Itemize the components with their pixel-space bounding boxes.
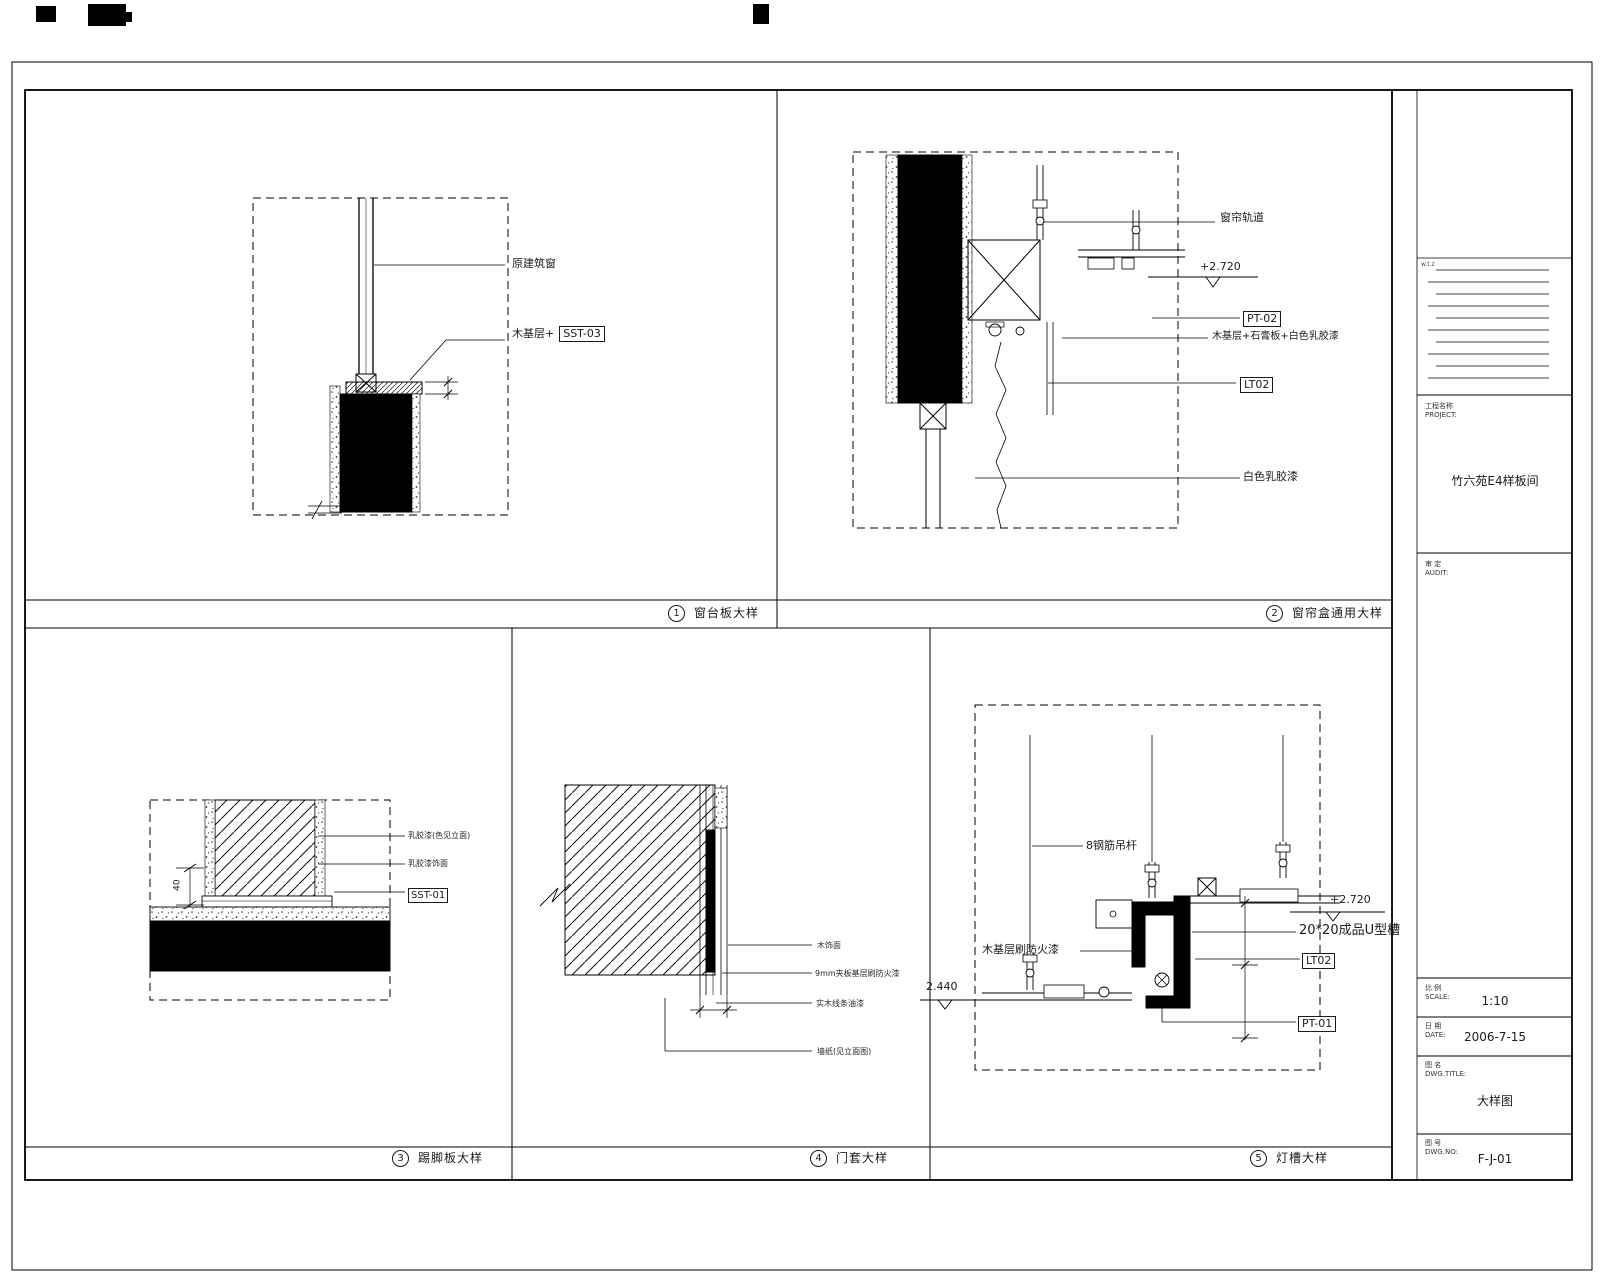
p5-title: 5 灯槽大样	[1250, 1150, 1328, 1167]
titleblock-note: w.t.z	[1421, 262, 1435, 269]
p3-title: 3 踢脚板大样	[392, 1150, 483, 1167]
p3-code-sst01: SST-01	[408, 884, 448, 903]
registration-marks	[36, 4, 769, 26]
p5-title-text: 灯槽大样	[1276, 1152, 1328, 1166]
titleblock-no-value: F-J-01	[1440, 1152, 1550, 1166]
panel3-linework	[150, 800, 405, 1000]
titleblock-project-label: 工程名称 PROJECT:	[1425, 402, 1457, 420]
p1-code-sst03: SST-03	[559, 326, 605, 342]
p4-title-text: 门套大样	[836, 1152, 888, 1166]
p1-title-text: 窗台板大样	[694, 607, 759, 621]
scale-label-cn: 比 例	[1425, 984, 1450, 993]
p3-title-text: 踢脚板大样	[418, 1152, 483, 1166]
panel1-linework	[253, 198, 508, 519]
p2-label-curtain-track: 窗帘轨道	[1220, 212, 1264, 225]
p4-label-wallpaper: 墙纸(见立面图)	[817, 1047, 871, 1056]
p5-elevation-low: 2.440	[926, 981, 958, 994]
titleblock-scale-value: 1:10	[1440, 994, 1550, 1008]
p2-code-pt02: PT-02	[1243, 308, 1281, 327]
p5-code-pt01-box: PT-01	[1298, 1016, 1336, 1032]
p2-title-text: 窗帘盒通用大样	[1292, 607, 1383, 621]
p3-label-wall-finish: 乳胶漆(色见立面)	[408, 831, 470, 840]
p1-label-original-window: 原建筑窗	[512, 258, 556, 271]
p2-code-pt02-box: PT-02	[1243, 311, 1281, 327]
cad-sheet: { "panels": { "p1": { "index": "1", "tit…	[0, 0, 1600, 1280]
audit-label-en: AUDIT:	[1425, 569, 1448, 578]
p4-title-number: 4	[810, 1150, 827, 1167]
p1-title: 1 窗台板大样	[668, 605, 759, 622]
sheet-frame	[12, 62, 1592, 1270]
p5-code-lt02-box: LT02	[1302, 953, 1335, 969]
panel2-linework	[853, 152, 1258, 528]
p2-title: 2 窗帘盒通用大样	[1266, 605, 1383, 622]
p2-label-wood-base-paint: 木基层+石膏板+白色乳胶漆	[1212, 331, 1339, 343]
titleblock-name-value: 大样图	[1440, 1092, 1550, 1109]
p4-label-veneer: 木饰面	[817, 941, 841, 950]
titleblock-audit-label: 审 定 AUDIT:	[1425, 560, 1448, 578]
p3-label-finish: 乳胶漆饰面	[408, 859, 448, 868]
audit-label-cn: 审 定	[1425, 560, 1448, 569]
p2-code-lt02-box: LT02	[1240, 377, 1273, 393]
project-label-cn: 工程名称	[1425, 402, 1457, 411]
p5-elevation-top: +2.720	[1330, 894, 1371, 907]
detail-linework	[0, 0, 1600, 1280]
p2-label-white-paint: 白色乳胶漆	[1243, 471, 1298, 484]
p3-title-number: 3	[392, 1150, 409, 1167]
titleblock-name-label: 图 名 DWG.TITLE:	[1425, 1061, 1466, 1079]
p2-elevation-top: +2.720	[1200, 261, 1241, 274]
p5-label-fireproof: 木基层刷防火漆	[982, 944, 1059, 957]
p1-base-text: 木基层+	[512, 328, 554, 341]
p2-code-lt02: LT02	[1240, 374, 1273, 393]
project-label-en: PROJECT:	[1425, 411, 1457, 420]
titleblock-project-name: 竹六苑E4样板间	[1420, 472, 1570, 489]
p1-title-number: 1	[668, 605, 685, 622]
p5-code-lt02: LT02	[1302, 950, 1335, 969]
titleblock-date-value: 2006-7-15	[1440, 1030, 1550, 1044]
p3-code-sst01-box: SST-01	[408, 888, 448, 903]
panel4-linework	[540, 785, 812, 1051]
name-label-cn: 图 名	[1425, 1061, 1466, 1070]
p5-title-number: 5	[1250, 1150, 1267, 1167]
p5-label-u-channel: 20*20成品U型槽	[1299, 924, 1400, 939]
p1-label-wood-base: 木基层+ SST-03	[512, 326, 605, 342]
p3-dim-40: 40	[173, 879, 183, 890]
p5-label-steel-rod: 8钢筋吊杆	[1086, 840, 1137, 853]
name-label-en: DWG.TITLE:	[1425, 1070, 1466, 1079]
p4-label-solidwood: 实木线条油漆	[816, 999, 864, 1008]
p4-title: 4 门套大样	[810, 1150, 888, 1167]
p5-code-pt01: PT-01	[1298, 1013, 1336, 1032]
p4-label-plywood: 9mm夹板基层刷防火漆	[815, 969, 900, 978]
p2-title-number: 2	[1266, 605, 1283, 622]
no-label-cn: 图 号	[1425, 1139, 1458, 1148]
